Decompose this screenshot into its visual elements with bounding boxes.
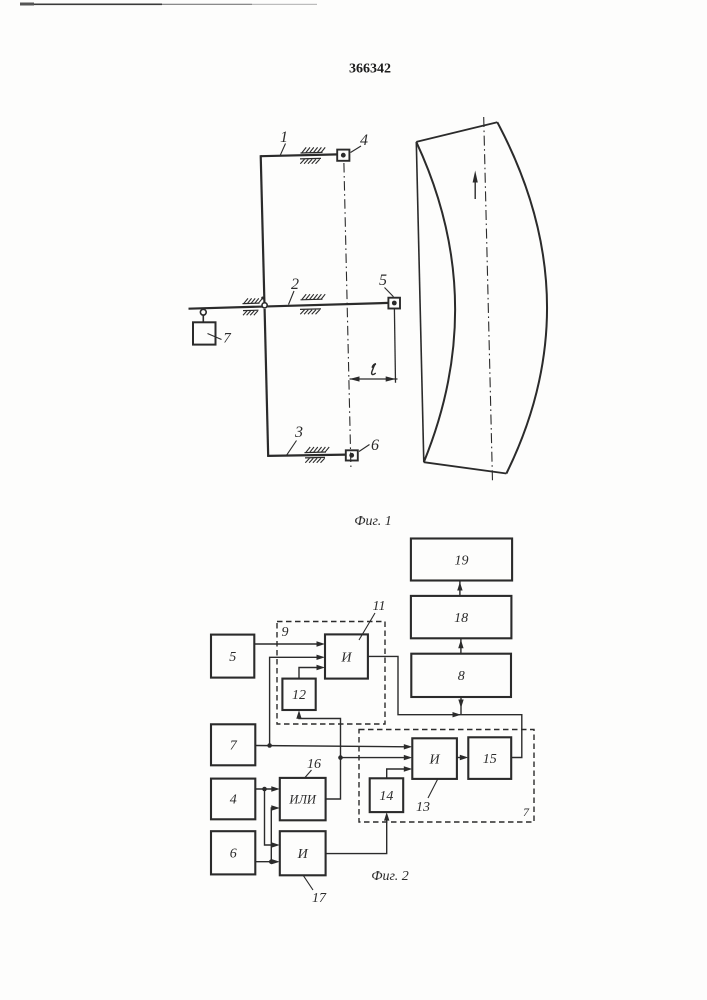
svg-text:366342: 366342 [349, 62, 391, 77]
svg-text:14: 14 [379, 789, 393, 804]
svg-text:ИЛИ: ИЛИ [288, 792, 316, 806]
svg-text:Фиг. 1: Фиг. 1 [354, 514, 392, 529]
svg-text:7: 7 [223, 331, 232, 347]
svg-text:И: И [297, 847, 309, 862]
svg-text:11: 11 [373, 599, 386, 614]
svg-text:16: 16 [307, 757, 321, 772]
svg-text:И: И [340, 650, 352, 665]
svg-text:9: 9 [282, 625, 289, 640]
svg-text:Фиг. 2: Фиг. 2 [371, 869, 409, 884]
svg-text:4: 4 [230, 793, 237, 808]
svg-text:7: 7 [523, 805, 530, 819]
svg-text:17: 17 [312, 891, 327, 906]
svg-text:6: 6 [371, 437, 379, 454]
svg-text:8: 8 [458, 669, 465, 684]
svg-text:12: 12 [292, 688, 306, 703]
svg-text:6: 6 [230, 847, 237, 862]
svg-text:18: 18 [454, 611, 468, 626]
svg-text:13: 13 [416, 800, 430, 815]
svg-text:5: 5 [379, 272, 387, 289]
svg-text:3: 3 [294, 424, 303, 441]
svg-text:15: 15 [483, 752, 497, 767]
svg-text:2: 2 [291, 276, 299, 293]
svg-text:И: И [429, 752, 441, 767]
svg-text:19: 19 [455, 553, 469, 568]
svg-text:7: 7 [230, 739, 238, 754]
svg-text:1: 1 [280, 129, 288, 146]
svg-text:5: 5 [229, 650, 236, 665]
